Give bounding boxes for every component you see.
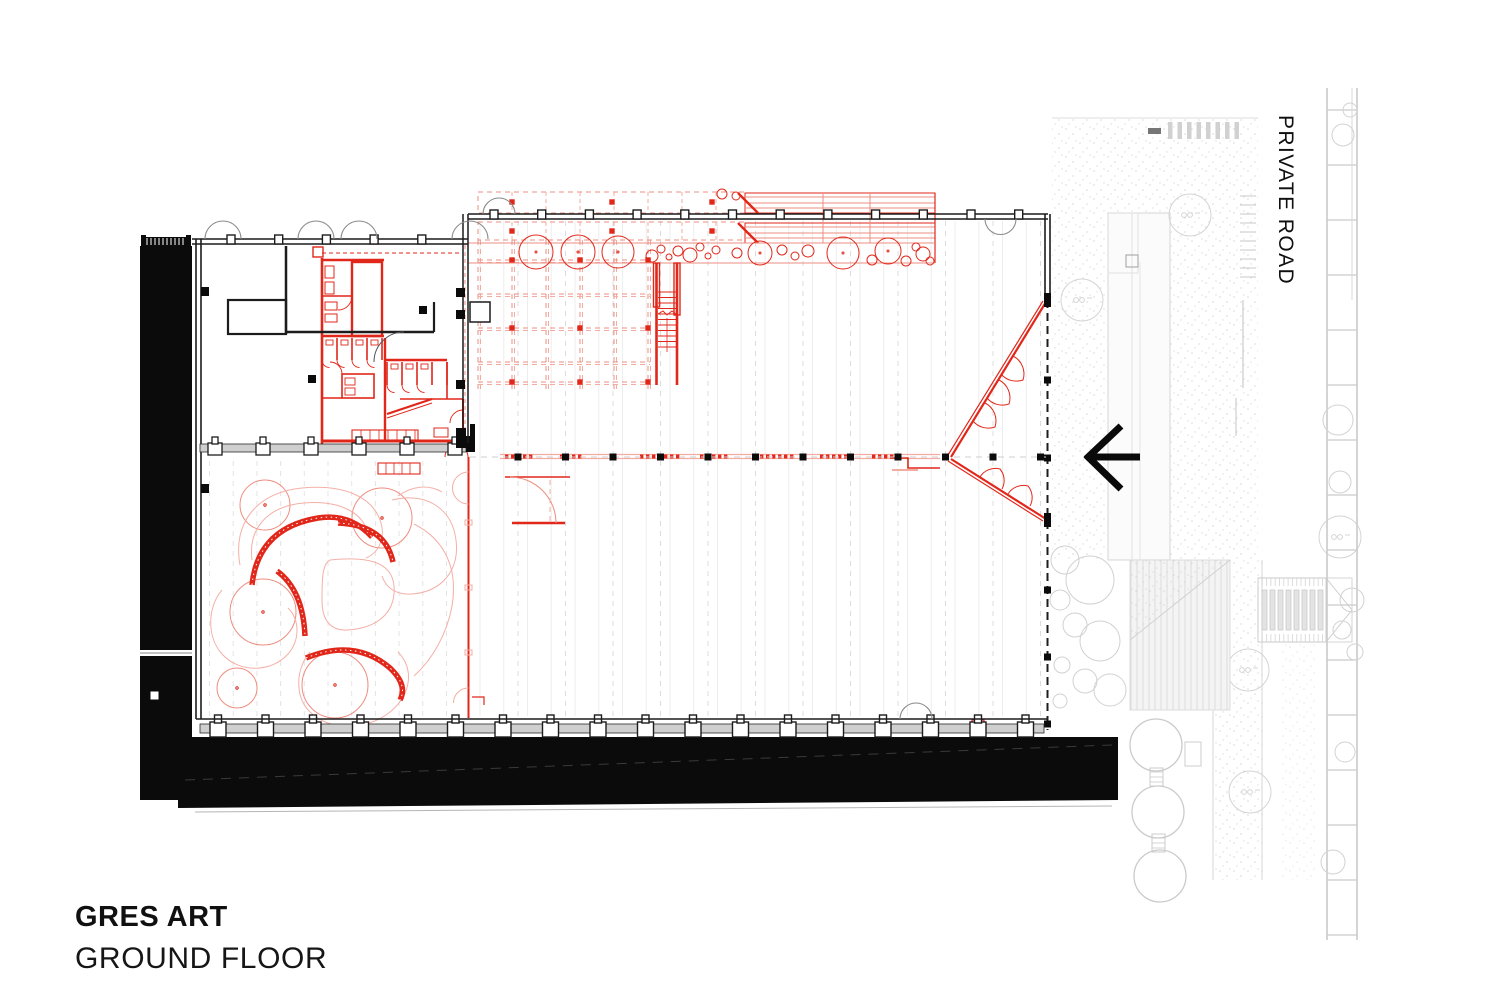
red-fitout-layer — [211, 189, 1046, 726]
private-road-label: PRIVATE ROAD — [1273, 115, 1297, 285]
sheet-title: GROUND FLOOR — [75, 942, 327, 976]
site-plan-context — [1050, 88, 1364, 940]
project-title: GRES ART — [75, 901, 228, 934]
floor-plan-sheet: PRIVATE ROAD GRES ART GROUND FLOOR — [0, 0, 1500, 1000]
